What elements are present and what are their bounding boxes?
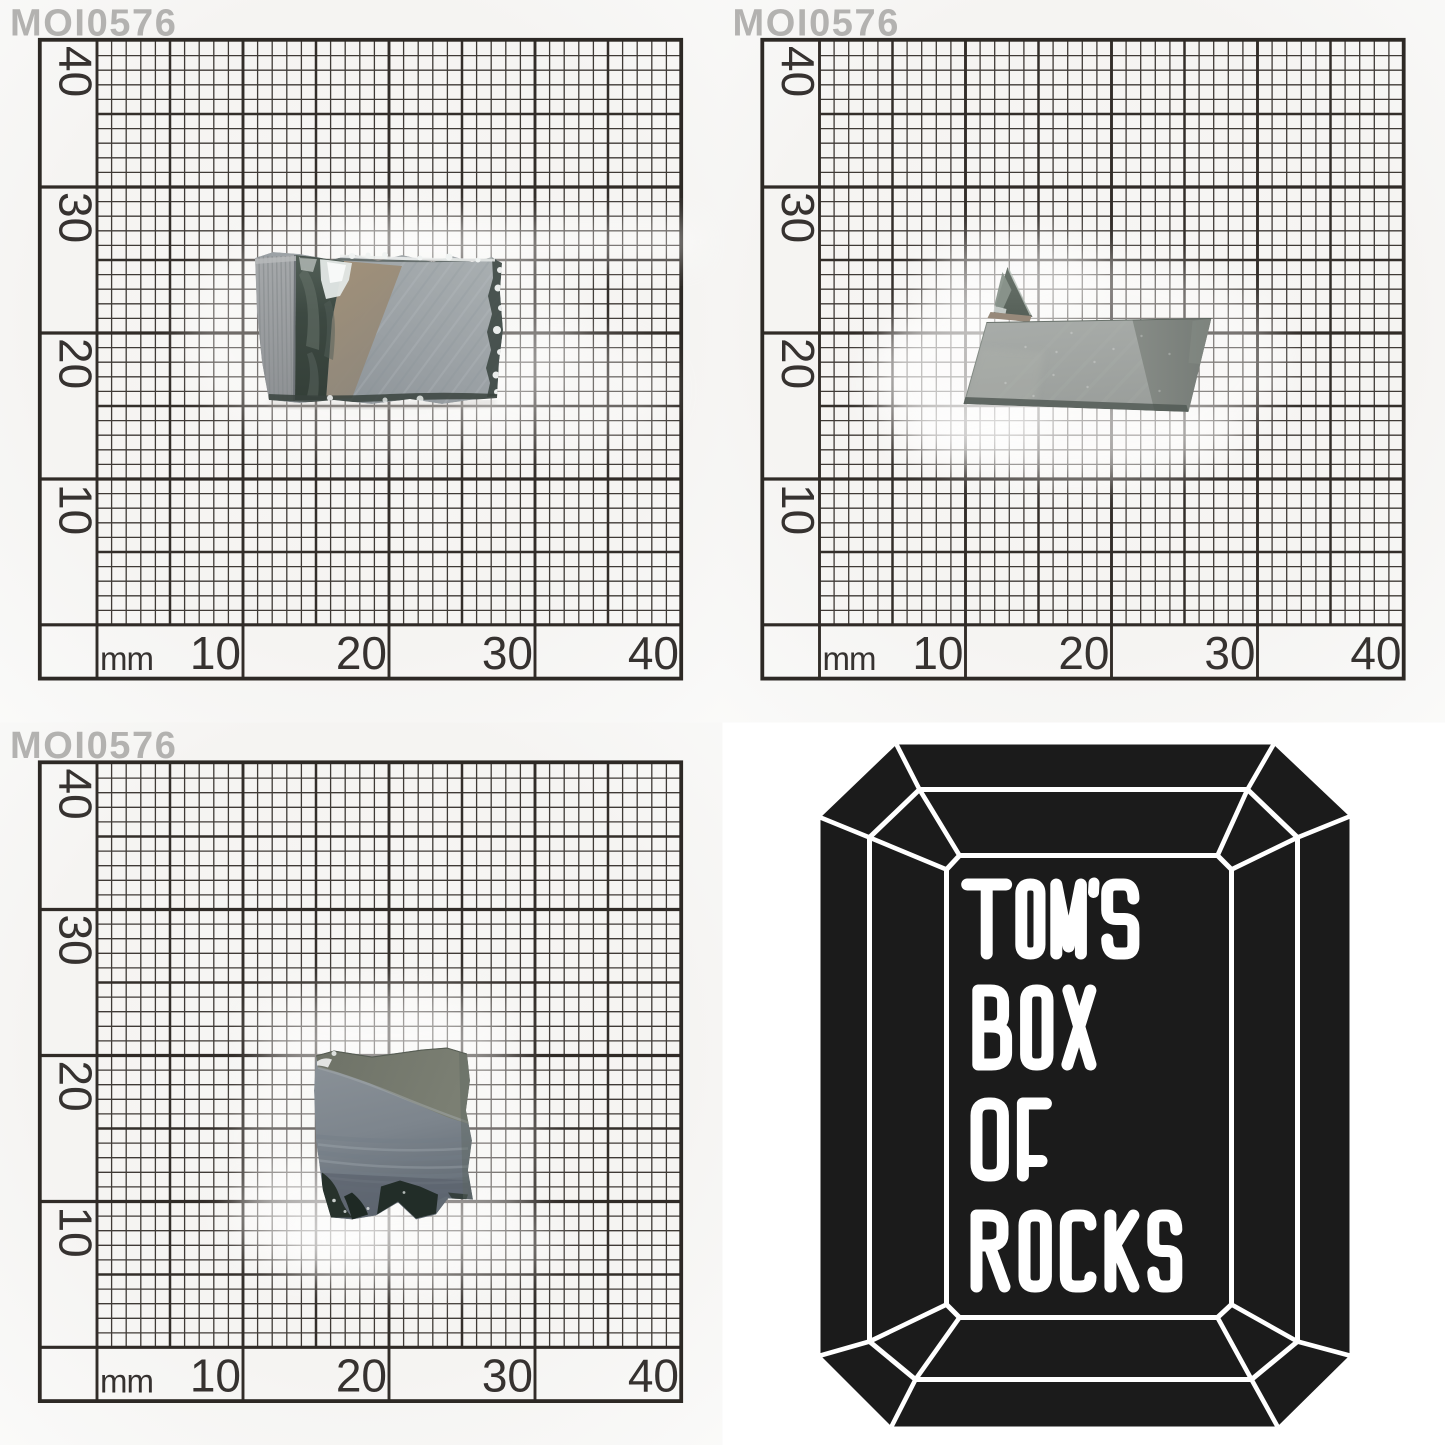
svg-text:mm: mm	[100, 1363, 153, 1400]
svg-text:40: 40	[50, 769, 102, 820]
svg-text:MOI0576: MOI0576	[10, 3, 178, 45]
svg-text:20: 20	[336, 627, 387, 679]
svg-text:mm: mm	[100, 640, 153, 677]
svg-text:40: 40	[628, 1350, 679, 1402]
svg-text:40: 40	[1350, 627, 1401, 679]
svg-text:30: 30	[50, 915, 102, 966]
svg-text:10: 10	[190, 627, 241, 679]
svg-text:30: 30	[50, 192, 102, 243]
svg-text:40: 40	[628, 627, 679, 679]
svg-text:30: 30	[482, 1350, 533, 1402]
svg-text:MOI0576: MOI0576	[733, 3, 901, 45]
svg-text:20: 20	[50, 338, 102, 389]
svg-text:20: 20	[1058, 627, 1109, 679]
svg-text:30: 30	[772, 192, 824, 243]
svg-text:30: 30	[1204, 627, 1255, 679]
svg-text:10: 10	[190, 1350, 241, 1402]
svg-text:20: 20	[336, 1350, 387, 1402]
svg-text:40: 40	[50, 46, 102, 97]
svg-text:30: 30	[482, 627, 533, 679]
svg-text:20: 20	[772, 338, 824, 389]
svg-text:mm: mm	[823, 640, 876, 677]
svg-text:10: 10	[772, 484, 824, 535]
svg-text:20: 20	[50, 1061, 102, 1112]
svg-text:10: 10	[912, 627, 963, 679]
svg-text:MOI0576: MOI0576	[10, 725, 178, 767]
svg-text:10: 10	[50, 484, 102, 535]
svg-text:10: 10	[50, 1207, 102, 1258]
svg-text:40: 40	[772, 46, 824, 97]
